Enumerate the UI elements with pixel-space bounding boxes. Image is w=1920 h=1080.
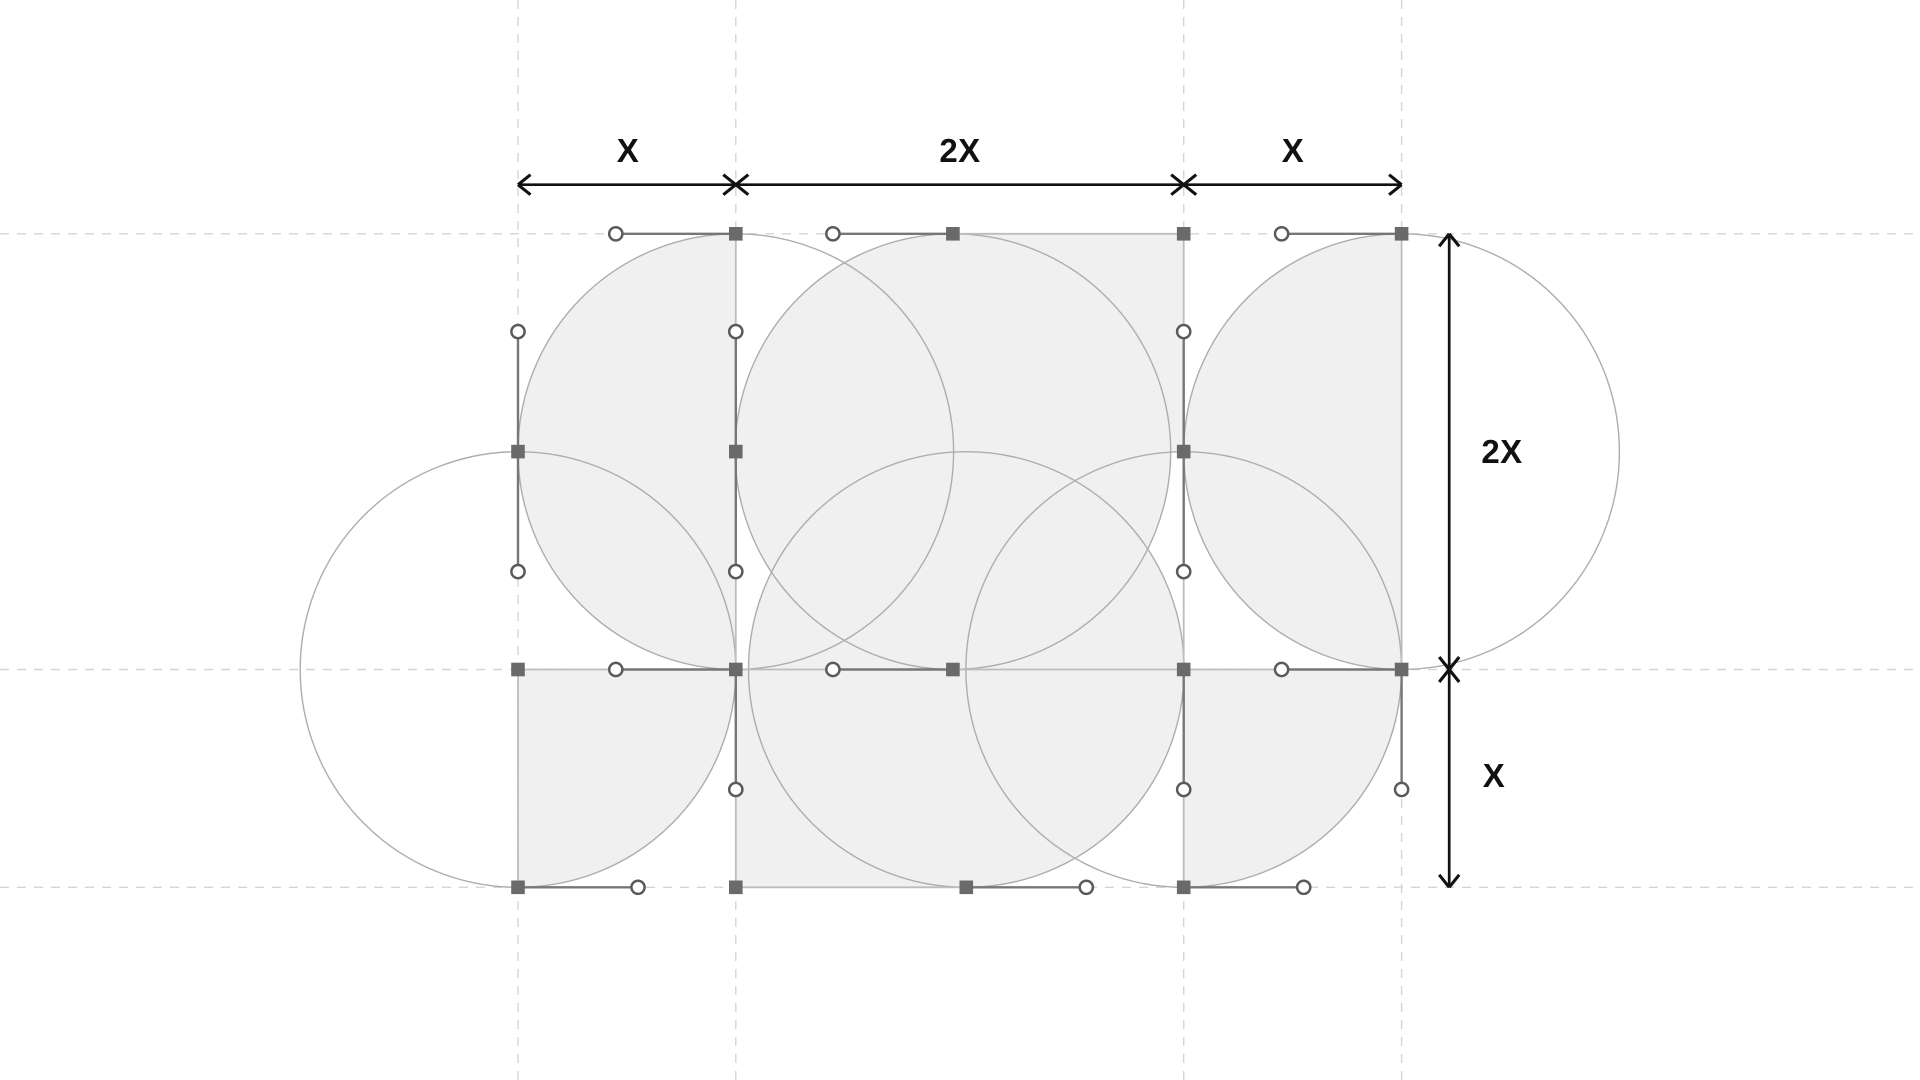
svg-text:2X: 2X: [1481, 433, 1522, 470]
svg-text:X: X: [617, 132, 640, 169]
svg-text:X: X: [1282, 132, 1305, 169]
svg-text:X: X: [1483, 757, 1506, 794]
svg-text:2X: 2X: [939, 132, 980, 169]
